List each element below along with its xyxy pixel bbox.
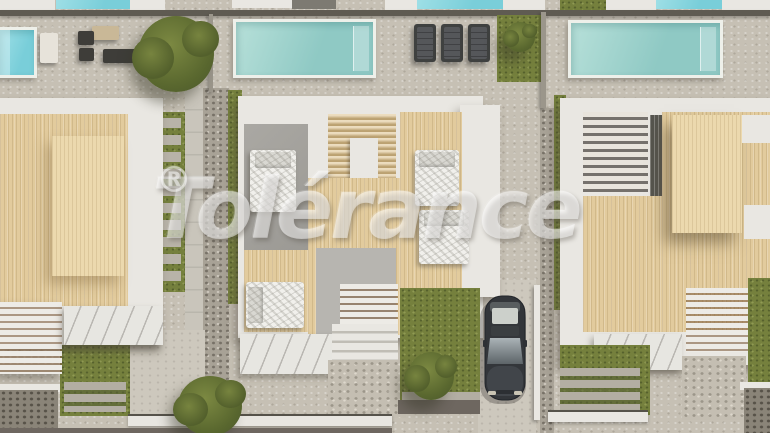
outdoor-armchair	[78, 31, 94, 45]
back-row-roof	[385, 0, 417, 10]
back-row-roof	[503, 0, 545, 10]
villa-right-wood-deck-lower	[583, 196, 662, 332]
plot-divider-wall	[541, 12, 546, 108]
bed	[246, 282, 304, 328]
lower-terrace-stone	[744, 388, 770, 433]
pool-left	[0, 27, 37, 78]
pool-steps	[700, 27, 716, 71]
tree	[138, 16, 214, 92]
back-row-pool	[656, 0, 722, 9]
villa-right-white-inset	[744, 205, 770, 239]
lounge-chair	[441, 24, 463, 62]
pool-right	[568, 20, 723, 78]
stone-curb	[398, 400, 480, 414]
garden-steps	[64, 382, 126, 412]
retaining-wall	[548, 410, 648, 422]
cobble-path	[540, 108, 554, 433]
back-row-roof-dark	[292, 0, 336, 9]
lounge-chair	[468, 24, 490, 62]
garden-steps	[560, 368, 640, 412]
pool-middle	[233, 19, 376, 78]
terrace-steps	[332, 324, 398, 360]
bush	[408, 352, 454, 400]
registered-trademark-icon: ®	[156, 160, 192, 201]
brand-watermark-text: Tolérance	[152, 160, 580, 258]
stone-path	[682, 356, 746, 420]
boundary-wall	[0, 10, 770, 16]
back-row-pool	[417, 0, 503, 9]
villa-right-pergola	[583, 112, 648, 192]
lounge-chair	[414, 24, 436, 62]
villa-left-pergola	[0, 302, 62, 374]
villa-middle-skylight-roof	[240, 334, 338, 374]
villa-right-white-inset	[742, 115, 770, 143]
outdoor-pouf	[79, 48, 94, 61]
back-row-pool	[56, 0, 130, 9]
villa-right-roof-tower	[672, 115, 742, 233]
parked-car	[480, 294, 530, 406]
villa-middle-pergola	[340, 284, 398, 324]
lower-terrace-stone	[0, 390, 58, 433]
villa-left-upper-deck	[52, 136, 124, 276]
back-row-roof	[232, 0, 292, 8]
retaining-wall	[128, 414, 392, 426]
aerial-render-scene: Tolérance®	[0, 0, 770, 433]
sun-lounger	[40, 33, 58, 63]
villa-left-skylight-roof	[64, 306, 163, 345]
stone-path	[328, 360, 406, 418]
fence-rail	[534, 285, 540, 420]
outdoor-bench	[92, 26, 119, 40]
tree	[178, 376, 242, 433]
small-tree	[505, 22, 535, 52]
pool-steps	[0, 30, 10, 75]
pool-steps	[353, 26, 369, 71]
lawn	[748, 278, 770, 390]
